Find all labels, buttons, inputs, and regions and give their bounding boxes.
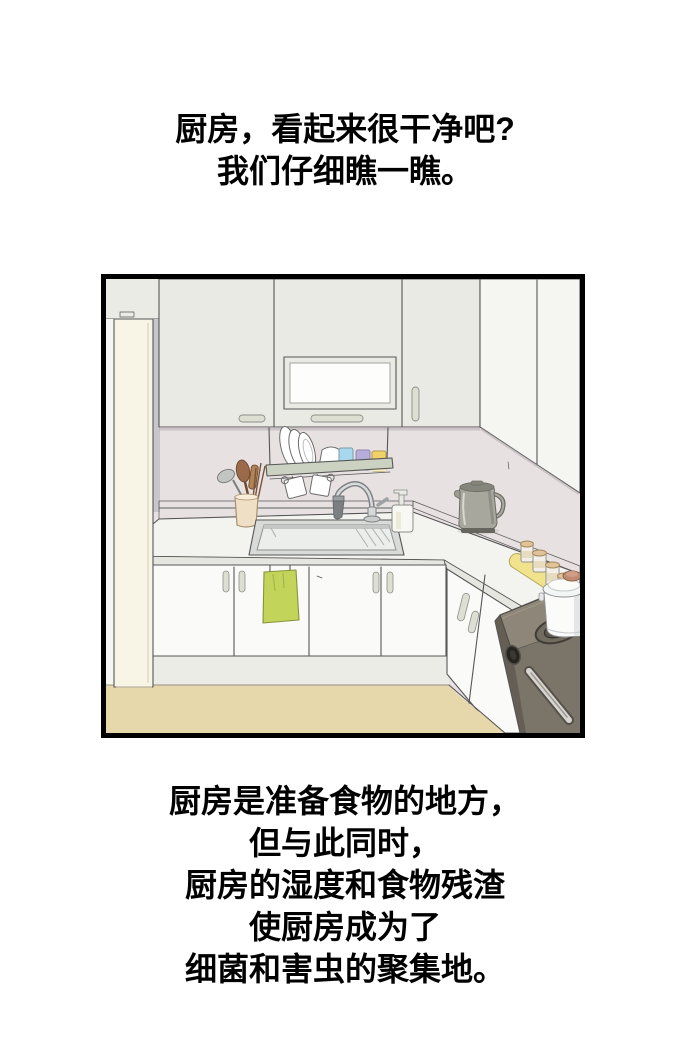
toe-kick — [116, 656, 449, 684]
fridge — [114, 319, 153, 687]
caption-line: 使厨房成为了 — [0, 906, 690, 948]
caption-line: 我们仔细瞧一瞧。 — [0, 150, 690, 192]
caption-line: 厨房是准备食物的地方， — [0, 780, 690, 822]
cabinet-handle — [239, 415, 265, 422]
caption-line: 细菌和害虫的聚集地。 — [0, 948, 690, 990]
caption-line: 但与此同时， — [0, 822, 690, 864]
top-caption: 厨房，看起来很干净吧? 我们仔细瞧一瞧。 — [0, 108, 690, 192]
caption-line: 厨房的湿度和食物残渣 — [0, 864, 690, 906]
sprayer-head — [333, 496, 344, 519]
cabinet-handle — [412, 387, 419, 421]
comic-page: 厨房，看起来很干净吧? 我们仔细瞧一瞧。 — [0, 0, 690, 1051]
cabinet-handle — [311, 415, 363, 422]
door-handle — [373, 572, 379, 593]
kettle-base — [461, 528, 495, 533]
floor — [106, 685, 505, 733]
door-handle — [239, 571, 245, 592]
hand-towel — [263, 565, 299, 623]
door-handle — [387, 572, 393, 593]
ceiling-strip — [106, 279, 159, 319]
spice-jar — [521, 541, 534, 562]
pot-handle — [539, 593, 544, 601]
caption-line: 厨房，看起来很干净吧? — [0, 108, 690, 150]
upper-cabinets — [159, 279, 480, 431]
spice-jar — [533, 550, 547, 572]
kitchen-illustration — [106, 279, 580, 733]
sink — [249, 520, 404, 555]
bottom-caption: 厨房是准备食物的地方， 但与此同时， 厨房的湿度和食物残渣 使厨房成为了 细菌和… — [0, 780, 690, 990]
utensil-cup — [235, 497, 258, 527]
comic-panel — [101, 274, 585, 738]
door-handle — [223, 571, 229, 592]
